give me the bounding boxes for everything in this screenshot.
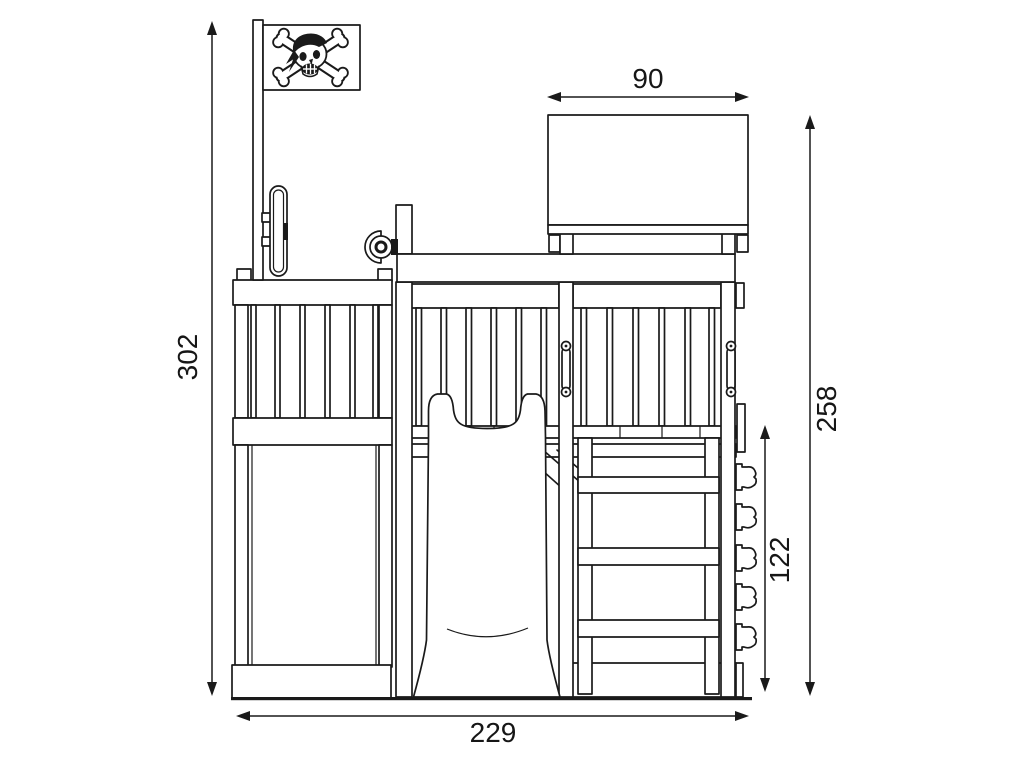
climbing-hold-icon: [736, 545, 756, 571]
dimension-label-122: 122: [764, 537, 795, 584]
left-tower-lower-frame: [235, 445, 392, 667]
corner-post-top: [396, 205, 412, 254]
roof-support-cap: [737, 235, 748, 252]
dimension-label-302: 302: [172, 334, 203, 381]
climbing-hold-icon: [736, 584, 756, 610]
side-board: [737, 404, 745, 452]
dimension-overall-width: 229: [236, 711, 749, 748]
climbing-hold-icon: [736, 504, 756, 530]
left-tower: [232, 269, 392, 698]
guardrail-right: [573, 284, 721, 308]
dimension-label-90: 90: [632, 63, 663, 94]
ladder-rung: [578, 477, 719, 493]
ladder-rung: [578, 620, 719, 637]
ground-line: [231, 697, 752, 700]
dimension-tower-height: 258: [805, 115, 842, 696]
ladder-rung: [578, 548, 719, 565]
ladder: [570, 438, 736, 697]
right-bay: [573, 284, 721, 426]
roof-support-cap: [549, 235, 560, 252]
telescope-icon: [365, 231, 398, 263]
climbing-wall: [736, 404, 756, 697]
pirate-flag-skull-crossbones-icon: [263, 25, 360, 90]
dimension-climbing-wall-height: 122: [760, 425, 795, 692]
side-board: [736, 663, 743, 697]
roof-box: [548, 115, 748, 225]
dimension-label-258: 258: [811, 386, 842, 433]
dimension-roof-width: 90: [547, 63, 749, 102]
right-balusters: [581, 308, 715, 426]
grab-handle: [562, 342, 571, 397]
grab-handle: [727, 342, 736, 397]
side-board: [736, 283, 744, 308]
steering-wheel-icon: [262, 186, 288, 276]
roof-panel: [548, 115, 748, 254]
guardrail-top-left: [233, 280, 392, 305]
slide-front-view: [414, 394, 561, 697]
platform-beam: [397, 254, 735, 282]
climbing-hold-icon: [736, 624, 756, 650]
roof-lip: [548, 225, 748, 234]
roof-support-post: [560, 233, 573, 254]
dimension-label-229: 229: [470, 717, 517, 748]
roof-support-post: [722, 233, 735, 254]
climbing-hold-icon: [736, 464, 756, 490]
left-tower-balusters: [235, 305, 392, 418]
base-beam-left: [232, 665, 391, 698]
playground-elevation-drawing: 302 90 258 122 229: [0, 0, 1024, 768]
guardrail-bottom-left: [233, 418, 392, 445]
dimension-overall-height: 302: [172, 21, 217, 696]
drawing-canvas: 302 90 258 122 229: [0, 0, 1024, 768]
guardrail-middle: [411, 284, 559, 308]
